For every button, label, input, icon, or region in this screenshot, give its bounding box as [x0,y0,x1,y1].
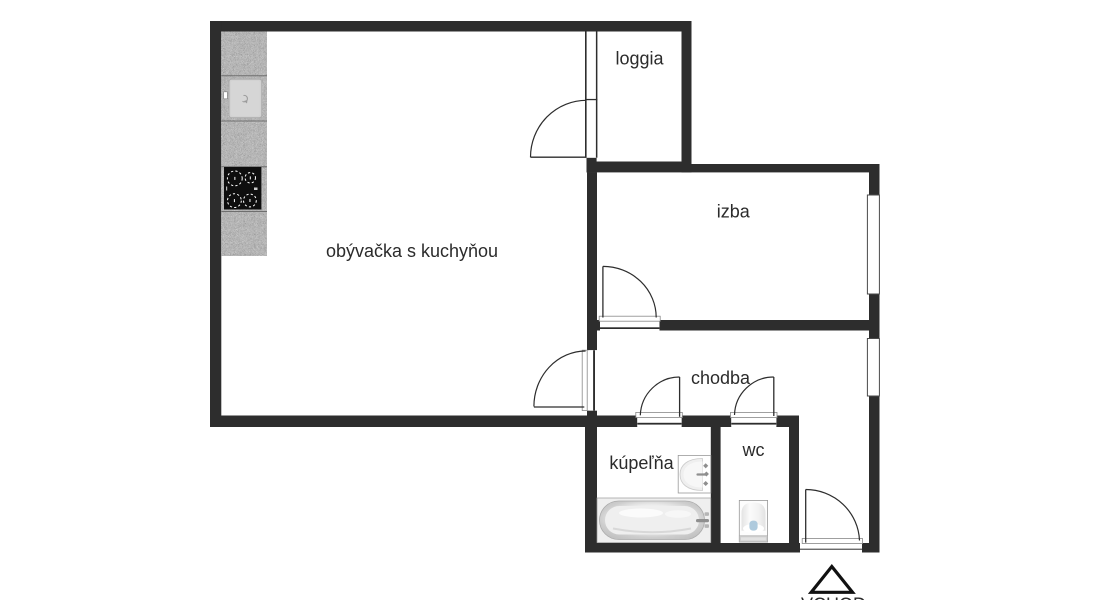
svg-text:izba: izba [717,201,751,221]
svg-text:loggia: loggia [615,49,664,69]
svg-text:VCHOD: VCHOD [801,595,866,600]
svg-text:kúpeľňa: kúpeľňa [609,453,674,473]
svg-text:chodba: chodba [691,368,751,388]
svg-text:obývačka s kuchyňou: obývačka s kuchyňou [326,241,498,261]
svg-text:wc: wc [742,440,765,460]
